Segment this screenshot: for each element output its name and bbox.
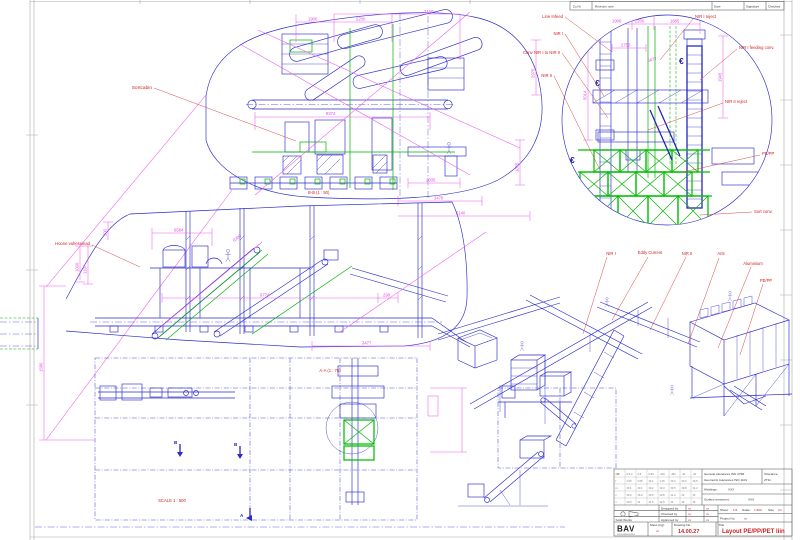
dim-text: 1580	[39, 362, 44, 372]
iso-label-pepp: PE/PP	[760, 278, 773, 283]
callout-nir2: NIR II	[541, 73, 552, 78]
approved-by-label: Approved by	[661, 518, 679, 522]
plan-green-lines	[240, 24, 455, 190]
dim-text: 5677	[647, 56, 658, 63]
solidworks-text: Solid Works	[616, 518, 633, 522]
tolerance-grid-cell: ±0.8	[660, 493, 666, 497]
plan-blob-outline	[206, 13, 542, 199]
tolerance-grid-cell: ±0.8	[682, 486, 688, 490]
tolerance-grid-cell: ±0.5	[693, 479, 699, 483]
mass-label: Mass (kg):	[650, 523, 665, 527]
iso-bin	[458, 330, 497, 368]
tolerance-grid-cell: ±1.5	[649, 500, 655, 504]
tolerance-grid-cell: ±3	[693, 493, 696, 497]
scale-label: Scale:	[742, 508, 751, 512]
left-edge-elements: 1580	[0, 286, 95, 440]
size-value: A1	[778, 508, 782, 512]
dim-text: 7150	[424, 9, 434, 14]
approved-by-value: xx	[688, 518, 692, 522]
checked-by-label: Checked by	[661, 512, 678, 516]
tolerance-grid-cell: ±2.5	[660, 500, 666, 504]
tolerance-grid-cell: ±0.2	[649, 486, 655, 490]
tolerance-grid-cell: ±0.5	[649, 493, 655, 497]
plan-machines	[282, 34, 464, 170]
designed-by-value: xx	[688, 507, 692, 511]
tolerance-grid-cell: ±.05	[627, 479, 633, 483]
callout-nir1-reject: NIR I reject	[695, 14, 717, 19]
section-marker-a: A	[240, 513, 244, 518]
tolerance-grid-cell: v	[616, 501, 618, 504]
callout-nir2-reject: NIR II reject	[725, 99, 748, 104]
dim-text: 3477	[362, 341, 372, 346]
geometric-tolerances-text: Geometric tolerances ISO 1101	[704, 478, 747, 482]
dim-text: 1685	[670, 19, 680, 24]
drawing-no-label: Drawing No.	[674, 523, 691, 527]
surface-treatment-value: XXX	[748, 498, 754, 502]
detail-left-conveyor	[596, 30, 614, 238]
tolerance-grid-cell: ±2	[682, 493, 685, 497]
dim-text: 1900	[308, 17, 318, 22]
iso-nir-machines	[498, 355, 576, 428]
plan-t-stem	[445, 156, 457, 176]
plan-t-conveyor	[408, 147, 466, 156]
tolerance-grid-cell: 6-30	[649, 472, 655, 476]
side-dimension-lines	[75, 222, 486, 351]
tolerance-grid-cell: ±1	[638, 500, 641, 504]
dim-text: 2750	[621, 43, 631, 48]
iso-label-nir2: NIR II	[682, 251, 693, 256]
dim-text: 2605	[426, 178, 436, 183]
dim-text: 1900	[612, 19, 622, 24]
human-figure-icon	[225, 249, 230, 261]
detail-cross-belts	[593, 90, 708, 142]
section-marker-b: B	[174, 440, 178, 445]
tolerance-grid-cell: ±4	[671, 500, 674, 504]
detail-elevator-tower	[684, 30, 705, 208]
dim-text: 2975	[531, 68, 536, 78]
tolerance-grid-cell: ±0.1	[638, 486, 644, 490]
dim-text: 1945	[718, 72, 723, 82]
checked-by-value: xx	[688, 512, 692, 516]
plan-view-sortcabin: 1900 2200 7150 8374 2605 3478 5140 2975 …	[46, 8, 542, 440]
checked-by-date: xx	[706, 512, 710, 516]
detail-outfeed-box	[712, 148, 754, 164]
callout-nir1-feeding: NIR I feeding conv.	[739, 45, 774, 50]
project-no-value: xx	[744, 517, 748, 521]
tolerance-grid-cell: -2k	[693, 472, 697, 476]
bottom-plan-machines	[98, 384, 235, 400]
iso-label-nir1: NIR I	[606, 251, 616, 256]
callout-hoone-vaheseinad: Hoone vaheseinad	[55, 241, 91, 246]
isometric-view: NIR I Eddy Current NIR II Anti Aluminium…	[438, 250, 792, 506]
tolerance-grid-cell: ±0.5	[671, 486, 677, 490]
company-logo-sub: ENGINEERING	[618, 534, 636, 536]
drawing-no-value: 14.00.27	[678, 529, 699, 535]
detail-green-scaffold	[578, 150, 712, 226]
tolerance-grid: mm0.5-33-66-30-120-400-1k-2kf±.05±.05±0.…	[616, 472, 699, 504]
section-markers: A B B	[174, 440, 252, 521]
designed-by-label: Designed by	[661, 507, 679, 511]
detail-view-circle: € € € 1900 2200 1685 2750 5677 1945 5014…	[523, 14, 775, 238]
revision-col-zunr: Zu.Nr	[573, 5, 581, 9]
section-assembly	[326, 358, 467, 505]
tolerance-label: Tolerance:	[764, 472, 778, 476]
dim-text: 5014	[583, 90, 588, 100]
drawing-canvas: Zu.Nr Revision note Date Signature Check…	[0, 0, 800, 540]
dim-text: 8374	[326, 111, 336, 116]
revision-table: Zu.Nr Revision note Date Signature Check…	[570, 2, 784, 11]
human-figure-icon	[728, 291, 732, 301]
callout-pepp: PE/PP	[762, 151, 775, 156]
bottom-plan-view: A B B A-A (1 : 75) SCALE 1 : 500	[35, 358, 616, 527]
tolerance-grid-cell: ±1.2	[671, 493, 677, 497]
tolerance-grid-cell: m	[616, 487, 618, 490]
scale-label: SCALE 1 : 500	[158, 498, 186, 503]
weldings-value: XXX	[728, 488, 734, 492]
iso-small-machine	[458, 436, 551, 506]
detail-outfeed-box2	[722, 172, 770, 185]
callout-conv-nir1-nir2: Conv NIR I to NIR II	[523, 50, 560, 55]
surface-treatment-label: Surface treatment:	[704, 498, 730, 502]
tolerance-grid-cell: ±0.2	[671, 479, 677, 483]
tolerance-grid-cell: ±1.2	[693, 486, 699, 490]
tolerance-grid-cell: ±0.3	[660, 486, 666, 490]
revision-col-checked: Checked	[768, 5, 780, 9]
dim-text: 298	[383, 293, 391, 298]
sheet-label: Sheet	[720, 508, 728, 512]
dim-text: 3478	[434, 196, 444, 201]
tolerance-grid-cell: ±0.5	[627, 500, 633, 504]
revision-col-date: Date	[714, 5, 721, 9]
revision-col-note: Revision note	[595, 5, 614, 9]
tolerance-grid-cell: ±.15	[660, 479, 666, 483]
tolerance-grid-cell: ±0.2	[627, 493, 633, 497]
company-logo: BAV	[617, 525, 635, 534]
size-label: Size	[768, 508, 774, 512]
plan-column-bases	[230, 177, 397, 189]
human-figure-icon	[520, 341, 524, 351]
dim-text: 1075	[515, 162, 520, 172]
designed-by-date: xx	[706, 507, 710, 511]
side-elevation-view: 6584 6300 9774 298 3477 300 1000 1197 Ho…	[55, 202, 486, 351]
dim-text: 6584	[174, 228, 184, 233]
tolerance-grid-cell: f	[616, 479, 617, 483]
building-outline	[66, 202, 467, 347]
callout-sortcabin: Sortcabin	[132, 85, 153, 91]
section-label-bb: B-B (1 : 50)	[308, 190, 330, 195]
revision-col-signature: Signature	[746, 5, 760, 9]
human-figure-icon	[670, 385, 674, 395]
floor-conveyor	[90, 318, 470, 347]
building-grid-outline	[95, 358, 417, 520]
weldings-label: Weldings:	[704, 488, 718, 492]
dim-text: 2200	[635, 19, 645, 24]
tolerance-grid-cell: c	[616, 494, 618, 497]
tolerance-grid-cell: ±6	[682, 500, 685, 504]
callout-sort-conv: Sort conv.	[754, 209, 773, 214]
dim-text: 9774	[260, 293, 270, 298]
tolerance-value: 2T11	[764, 478, 771, 482]
detail-chute	[650, 106, 680, 160]
general-tolerances-text: General tolerances ISO 2768	[704, 472, 744, 476]
dim-text: 1197	[83, 264, 88, 274]
tolerance-grid-cell: 0.5-3	[627, 472, 633, 476]
drawing-title-value: Layout PE/PP/PET liin	[722, 529, 785, 535]
dim-text: 300	[103, 228, 108, 236]
approved-by-date: xx	[706, 518, 710, 522]
tolerance-grid-cell: ±8	[693, 500, 696, 504]
iso-label-eddy-current: Eddy Current	[638, 250, 664, 255]
centroid-symbol: €	[679, 56, 684, 66]
callout-line-infeed: Line Infeed	[542, 14, 563, 19]
tolerance-grid-cell: -1k	[682, 472, 686, 476]
tolerance-grid-cell: ±0.3	[638, 493, 644, 497]
dim-text: 1000	[75, 262, 80, 272]
section-marker-b: B	[234, 442, 238, 447]
iso-label-aluminium: Aluminium	[743, 261, 763, 266]
tolerance-grid-cell: -400	[671, 472, 677, 476]
title-label: Title	[719, 523, 725, 527]
tolerance-grid-cell: -120	[660, 472, 666, 476]
iso-label-anti: Anti	[717, 251, 724, 256]
section-label-aa: A-A (1 : 75)	[319, 368, 341, 373]
scale-value: 1:500	[754, 508, 762, 512]
dim-text: 2200	[356, 17, 366, 22]
tolerance-grid-cell: ±0.1	[649, 479, 655, 483]
sheet-value: 1/3	[733, 508, 738, 512]
sheet-frame	[26, 0, 792, 540]
tolerance-grid-cell: ±.05	[638, 479, 644, 483]
tolerance-grid-cell: 3-6	[638, 472, 642, 476]
title-block: mm0.5-33-66-30-120-400-1k-2kf±.05±.05±0.…	[614, 469, 792, 536]
project-no-label: Project No.	[720, 517, 735, 521]
dim-text: 6300	[232, 233, 243, 243]
iso-sorting-cabin	[690, 296, 792, 416]
tolerance-grid-cell: ±0.1	[627, 486, 633, 490]
cad-drawing-sheet: Zu.Nr Revision note Date Signature Check…	[0, 0, 800, 540]
centroid-symbol: €	[570, 155, 575, 165]
tolerance-grid-cell: ±0.3	[682, 479, 688, 483]
plan-dimension-lines	[46, 12, 541, 440]
mass-value: xx	[656, 529, 660, 533]
iso-conveyor-bands	[438, 295, 700, 446]
callout-nir1: NIR I	[553, 31, 563, 36]
